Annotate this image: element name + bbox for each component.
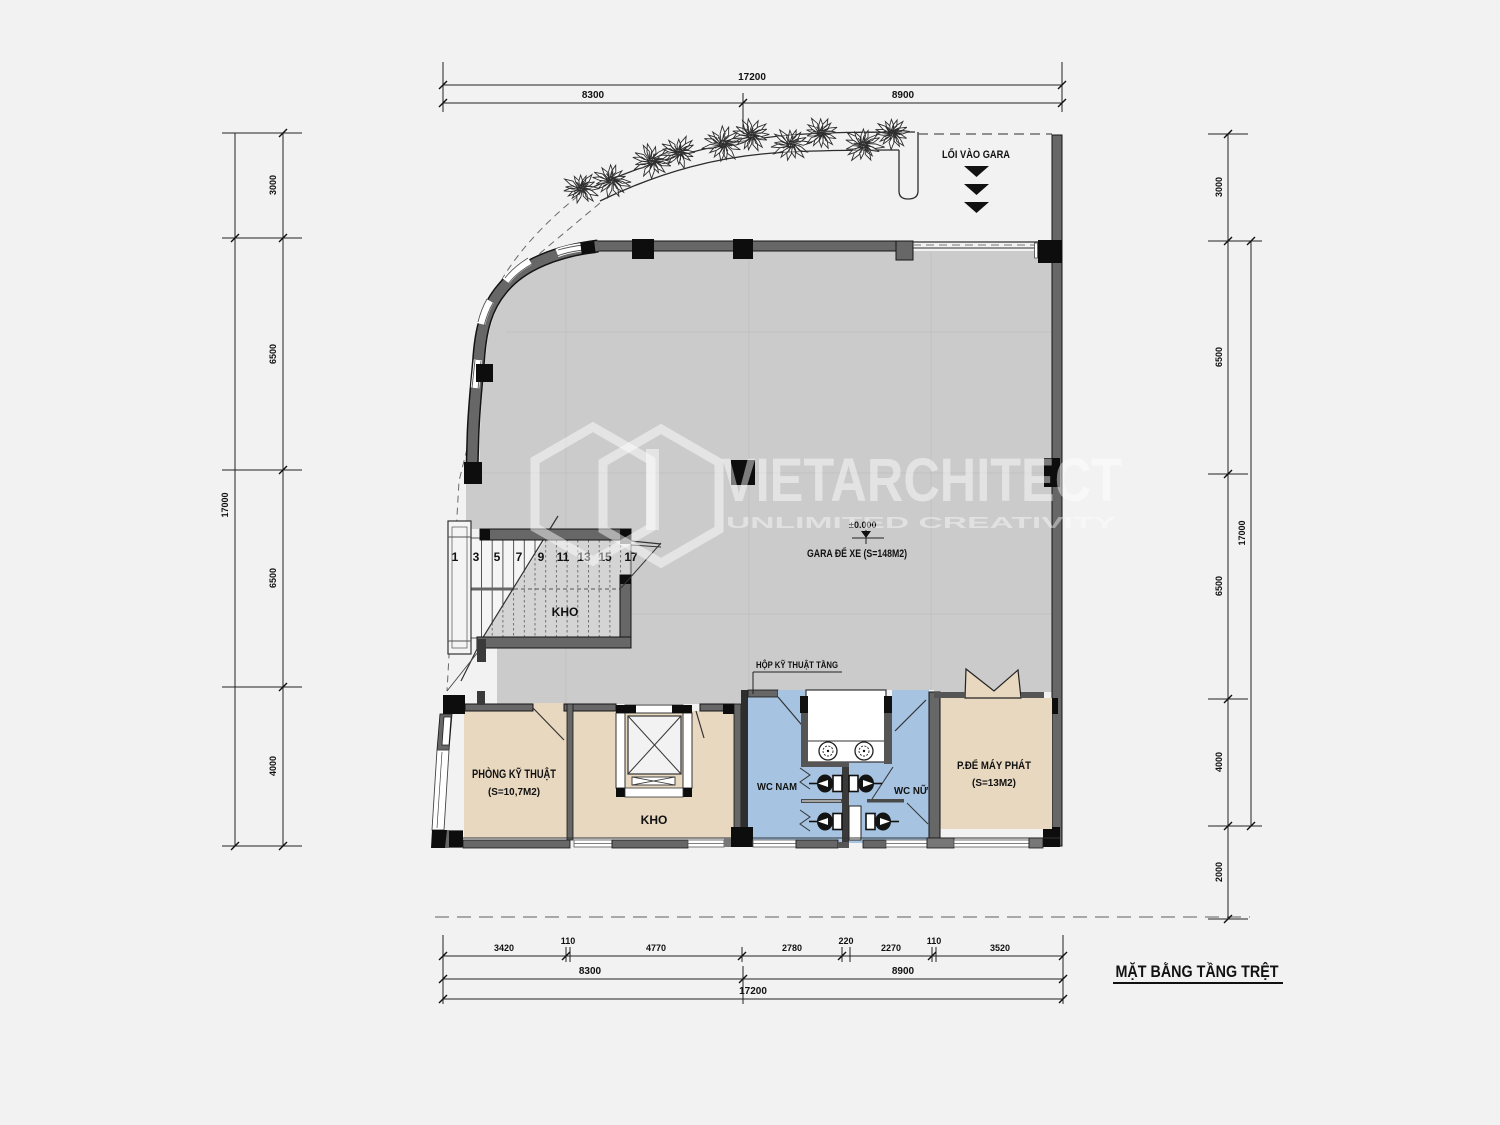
svg-text:LỐI VÀO GARA: LỐI VÀO GARA — [942, 147, 1010, 161]
svg-text:1: 1 — [452, 550, 459, 564]
svg-text:MẶT BẰNG TẦNG TRỆT: MẶT BẰNG TẦNG TRỆT — [1116, 962, 1279, 981]
svg-text:WC NAM: WC NAM — [757, 782, 797, 793]
svg-text:4000: 4000 — [1214, 752, 1224, 772]
svg-text:8900: 8900 — [892, 90, 915, 101]
svg-text:(S=10,7M2): (S=10,7M2) — [488, 786, 540, 798]
svg-text:P.ĐỂ MÁY PHÁT: P.ĐỂ MÁY PHÁT — [957, 759, 1031, 772]
svg-text:17000: 17000 — [1237, 520, 1247, 545]
svg-text:(S=13M2): (S=13M2) — [972, 778, 1016, 789]
svg-text:6500: 6500 — [268, 568, 278, 588]
svg-text:3520: 3520 — [990, 943, 1010, 953]
svg-text:6500: 6500 — [1214, 576, 1224, 596]
svg-text:220: 220 — [838, 936, 853, 946]
svg-text:KHO: KHO — [641, 813, 668, 827]
svg-text:6500: 6500 — [268, 344, 278, 364]
svg-text:17200: 17200 — [739, 986, 767, 997]
svg-text:3000: 3000 — [1214, 177, 1224, 197]
svg-text:WC NỮ: WC NỮ — [894, 784, 929, 797]
svg-text:110: 110 — [927, 936, 942, 946]
svg-text:110: 110 — [561, 936, 576, 946]
svg-text:5: 5 — [494, 550, 501, 564]
svg-text:2780: 2780 — [782, 943, 802, 953]
svg-text:2270: 2270 — [881, 943, 901, 953]
svg-text:6500: 6500 — [1214, 347, 1224, 367]
svg-text:11: 11 — [557, 550, 570, 564]
svg-text:KHO: KHO — [552, 605, 579, 619]
svg-text:HỘP KỸ THUẬT TẦNG: HỘP KỸ THUẬT TẦNG — [756, 659, 838, 670]
svg-text:8300: 8300 — [582, 90, 605, 101]
svg-text:9: 9 — [538, 550, 545, 564]
svg-text:7: 7 — [516, 550, 523, 564]
svg-text:3420: 3420 — [494, 943, 514, 953]
svg-text:4000: 4000 — [268, 756, 278, 776]
svg-text:8300: 8300 — [579, 966, 602, 977]
svg-text:17000: 17000 — [220, 492, 230, 517]
svg-text:2000: 2000 — [1214, 862, 1224, 882]
svg-text:UNLIMITED CREATIVITY: UNLIMITED CREATIVITY — [726, 515, 1117, 532]
svg-text:3000: 3000 — [268, 175, 278, 195]
svg-text:8900: 8900 — [892, 966, 915, 977]
svg-text:GARA ĐỂ XE (S=148M2): GARA ĐỂ XE (S=148M2) — [807, 547, 907, 560]
svg-text:PHÒNG KỸ THUẬT: PHÒNG KỸ THUẬT — [472, 766, 557, 781]
svg-text:4770: 4770 — [646, 943, 666, 953]
svg-text:17200: 17200 — [738, 72, 766, 83]
svg-text:3: 3 — [473, 550, 480, 564]
svg-text:VIETARCHITECT: VIETARCHITECT — [722, 446, 1122, 514]
